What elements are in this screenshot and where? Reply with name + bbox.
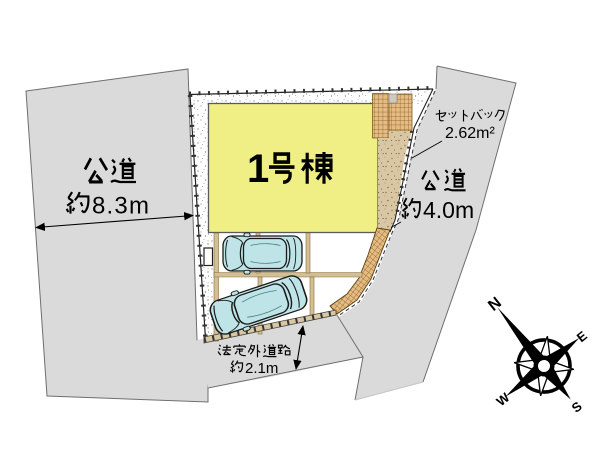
svg-text:8.3m: 8.3m: [92, 193, 150, 220]
svg-text:2.62m²: 2.62m²: [445, 125, 495, 142]
svg-text:4.0m: 4.0m: [423, 197, 474, 223]
svg-text:2.1m: 2.1m: [245, 360, 278, 377]
svg-text:1: 1: [247, 147, 269, 191]
